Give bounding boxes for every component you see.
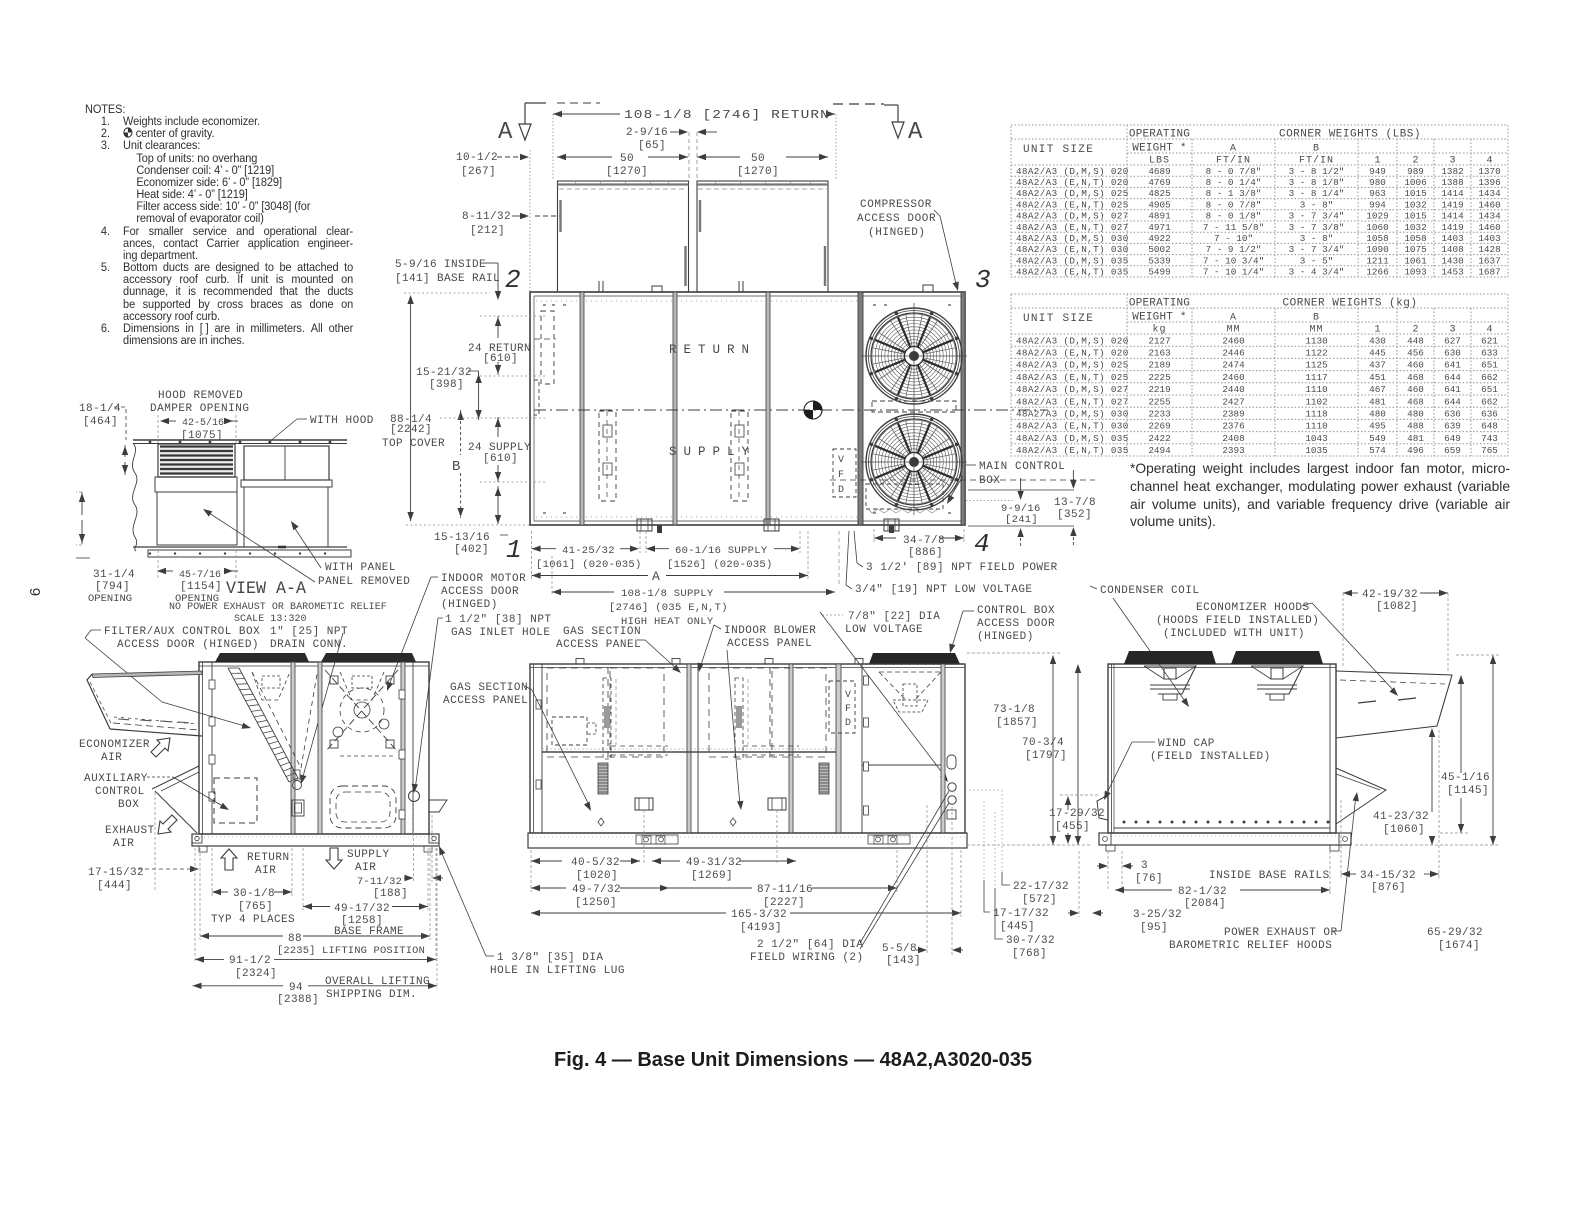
svg-text:5-9/16 INSIDE: 5-9/16 INSIDE [395,259,486,271]
svg-text:1408: 1408 [1441,244,1463,255]
svg-text:448: 448 [1407,335,1424,346]
svg-text:989: 989 [1407,166,1424,177]
svg-text:2219: 2219 [1148,384,1170,395]
svg-text:82-1/32: 82-1/32 [1178,886,1227,898]
svg-text:8 - 0 1/4": 8 - 0 1/4" [1206,177,1262,188]
svg-text:ACCESS PANEL: ACCESS PANEL [556,639,641,651]
svg-text:1453: 1453 [1441,267,1463,278]
svg-text:[572]: [572] [1022,894,1057,906]
svg-text:(HINGED): (HINGED) [868,227,926,239]
svg-text:4971: 4971 [1148,222,1171,233]
svg-text:[2227]: [2227] [763,897,805,909]
svg-text:1 1/2" [38] NPT: 1 1/2" [38] NPT [445,614,552,626]
svg-text:7 - 10 3/4": 7 - 10 3/4" [1203,255,1264,266]
svg-text:456: 456 [1407,348,1424,359]
svg-text:D: D [838,485,844,496]
svg-text:2440: 2440 [1222,384,1244,395]
svg-text:(HINGED): (HINGED) [977,631,1034,643]
svg-text:649: 649 [1444,433,1461,444]
svg-text:18-1/4: 18-1/4 [79,403,121,415]
svg-text:481: 481 [1369,396,1386,407]
svg-text:496: 496 [1407,445,1424,456]
svg-text:48A2/A3 (D,M,S) 020: 48A2/A3 (D,M,S) 020 [1016,335,1129,346]
svg-text:1130: 1130 [1305,335,1327,346]
svg-text:641: 641 [1444,360,1461,371]
svg-text:636: 636 [1444,409,1461,420]
svg-text:648: 648 [1481,421,1498,432]
svg-text:7/8" [22] DIA: 7/8" [22] DIA [848,611,940,623]
svg-text:48A2/A3 (E,N,T) 025: 48A2/A3 (E,N,T) 025 [1016,199,1129,210]
svg-text:48A2/A3 (E,N,T) 027: 48A2/A3 (E,N,T) 027 [1016,222,1129,233]
svg-text:87-11/16: 87-11/16 [757,884,813,896]
svg-text:8 - 0 7/8": 8 - 0 7/8" [1206,199,1262,210]
svg-text:2376: 2376 [1222,421,1244,432]
svg-text:3: 3 [1449,325,1455,336]
svg-text:165-3/32: 165-3/32 [731,909,787,921]
svg-text:SUPPLY: SUPPLY [669,445,756,459]
svg-text:48A2/A3 (E,N,T) 030: 48A2/A3 (E,N,T) 030 [1016,244,1129,255]
svg-text:73-1/8: 73-1/8 [993,704,1035,716]
svg-text:4689: 4689 [1148,166,1170,177]
svg-text:1093: 1093 [1404,267,1426,278]
svg-text:(HOODS FIELD INSTALLED): (HOODS FIELD INSTALLED) [1156,615,1319,627]
svg-text:(FIELD INSTALLED): (FIELD INSTALLED) [1150,751,1271,763]
svg-text:48A2/A3 (D,M,S) 025: 48A2/A3 (D,M,S) 025 [1016,188,1129,199]
svg-text:17-17/32: 17-17/32 [993,908,1049,920]
svg-text:TOP COVER: TOP COVER [382,438,445,450]
svg-text:627: 627 [1444,335,1461,346]
svg-text:1396: 1396 [1478,177,1500,188]
svg-text:[886]: [886] [908,547,943,559]
svg-text:48A2/A3 (D,M,S) 020: 48A2/A3 (D,M,S) 020 [1016,166,1129,177]
svg-text:2460: 2460 [1222,372,1244,383]
svg-text:5339: 5339 [1148,255,1170,266]
svg-text:468: 468 [1407,372,1424,383]
svg-text:2 1/2" [64] DIA: 2 1/2" [64] DIA [757,939,864,951]
svg-text:[1154]: [1154] [180,581,222,593]
svg-text:1061: 1061 [1404,255,1427,266]
svg-text:40-5/32: 40-5/32 [571,857,620,869]
svg-text:48A2/A3 (D,M,S) 030: 48A2/A3 (D,M,S) 030 [1016,233,1129,244]
svg-text:[402]: [402] [454,544,489,556]
svg-text:2233: 2233 [1148,409,1170,420]
svg-text:45-1/16: 45-1/16 [1441,772,1490,784]
svg-text:1403: 1403 [1478,233,1500,244]
svg-text:2163: 2163 [1148,348,1170,359]
svg-text:[1145]: [1145] [1447,785,1489,797]
svg-text:1032: 1032 [1404,199,1426,210]
svg-text:V: V [838,455,844,466]
svg-text:651: 651 [1481,360,1498,371]
svg-text:GAS SECTION: GAS SECTION [563,626,641,638]
svg-text:[464]: [464] [83,416,118,428]
svg-text:AIR: AIR [113,838,134,850]
svg-text:1434: 1434 [1478,188,1501,199]
svg-text:48A2/A3 (D,M,S) 027: 48A2/A3 (D,M,S) 027 [1016,384,1129,395]
svg-text:ECONOMIZER: ECONOMIZER [79,739,150,751]
svg-text:48A2/A3 (D,M,S) 035: 48A2/A3 (D,M,S) 035 [1016,433,1129,444]
svg-text:437: 437 [1369,360,1386,371]
svg-text:1118: 1118 [1305,409,1327,420]
svg-text:659: 659 [1444,445,1461,456]
svg-text:34-15/32: 34-15/32 [1360,870,1416,882]
svg-text:1211: 1211 [1366,255,1389,266]
svg-text:488: 488 [1407,421,1424,432]
svg-text:662: 662 [1481,372,1498,383]
svg-text:(INCLUDED WITH UNIT): (INCLUDED WITH UNIT) [1163,628,1305,640]
svg-text:F: F [838,470,844,481]
svg-text:[1857]: [1857] [996,717,1038,729]
svg-text:42-5/16: 42-5/16 [182,417,224,429]
svg-text:[1061] (020-035): [1061] (020-035) [536,559,642,571]
svg-text:ACCESS DOOR: ACCESS DOOR [857,213,936,225]
svg-text:1015: 1015 [1404,188,1426,199]
svg-text:94: 94 [289,982,303,994]
svg-text:1419: 1419 [1441,222,1463,233]
svg-text:4905: 4905 [1148,199,1170,210]
svg-text:SHIPPING DIM.: SHIPPING DIM. [326,989,417,1001]
svg-text:CORNER WEIGHTS (kg): CORNER WEIGHTS (kg) [1283,298,1418,310]
svg-text:AIR: AIR [101,752,122,764]
svg-text:3 - 7 3/8": 3 - 7 3/8" [1289,222,1345,233]
svg-text:[2324]: [2324] [235,968,277,980]
svg-text:FT/IN: FT/IN [1216,155,1251,167]
svg-text:3 - 7 3/4": 3 - 7 3/4" [1289,211,1345,222]
svg-text:2189: 2189 [1148,360,1170,371]
svg-text:17-15/32: 17-15/32 [88,867,144,879]
svg-text:641: 641 [1444,384,1461,395]
svg-text:31-1/4: 31-1/4 [93,569,135,581]
svg-text:MAIN CONTROL: MAIN CONTROL [979,461,1065,473]
svg-text:[1270]: [1270] [606,166,648,178]
svg-text:GAS SECTION: GAS SECTION [450,682,528,694]
svg-text:ACCESS DOOR: ACCESS DOOR [441,586,519,598]
svg-text:1029: 1029 [1366,211,1388,222]
svg-text:SUPPLY: SUPPLY [347,849,390,861]
svg-text:4: 4 [974,529,990,559]
svg-text:B: B [1313,144,1320,155]
svg-text:1370: 1370 [1478,166,1500,177]
svg-text:[4193]: [4193] [740,922,782,934]
svg-text:D: D [845,718,851,729]
svg-text:30-7/32: 30-7/32 [1006,935,1055,947]
svg-text:HOLE IN LIFTING LUG: HOLE IN LIFTING LUG [490,965,625,977]
svg-text:A: A [1230,313,1237,324]
svg-text:INDOOR MOTOR: INDOOR MOTOR [441,573,526,585]
svg-text:1414: 1414 [1441,211,1464,222]
svg-text:MM: MM [1226,325,1240,336]
svg-text:108-1/8 [2746] RETURN: 108-1/8 [2746] RETURN [624,109,830,122]
svg-text:1388: 1388 [1441,177,1463,188]
svg-text:[241]: [241] [1005,514,1038,526]
svg-text:3: 3 [1141,860,1148,872]
svg-text:50: 50 [620,153,634,165]
svg-text:4891: 4891 [1148,211,1171,222]
svg-text:OVERALL LIFTING: OVERALL LIFTING [325,976,430,988]
svg-text:WITH HOOD: WITH HOOD [310,415,374,427]
svg-text:1687: 1687 [1478,267,1500,278]
svg-text:6: 6 [27,588,44,596]
svg-text:7 - 11 5/8": 7 - 11 5/8" [1203,222,1264,233]
svg-text:460: 460 [1407,384,1424,395]
svg-text:ECONOMIZER HOODS: ECONOMIZER HOODS [1196,602,1310,614]
svg-text:Fig. 4 — Base Unit Dimensions: Fig. 4 — Base Unit Dimensions — 48A2,A30… [554,1049,1032,1071]
svg-text:963: 963 [1369,188,1386,199]
svg-text:48A2/A3 (E,N,T) 035: 48A2/A3 (E,N,T) 035 [1016,267,1129,278]
svg-text:A: A [1230,144,1237,155]
svg-text:3-25/32: 3-25/32 [1133,909,1182,921]
svg-text:[1270]: [1270] [737,166,779,178]
svg-text:FT/IN: FT/IN [1299,155,1334,167]
svg-text:[1674]: [1674] [1438,940,1480,952]
svg-text:WEIGHT *: WEIGHT * [1132,312,1186,324]
svg-text:621: 621 [1481,335,1498,346]
svg-text:WITH PANEL: WITH PANEL [325,562,396,574]
svg-text:1: 1 [1374,325,1380,336]
svg-text:48A2/A3 (E,N,T) 020: 48A2/A3 (E,N,T) 020 [1016,348,1129,359]
svg-text:41-25/32: 41-25/32 [562,545,615,557]
svg-text:V: V [845,690,851,701]
svg-text:17-29/32: 17-29/32 [1049,808,1105,820]
svg-text:1414: 1414 [1441,188,1464,199]
svg-text:49-31/32: 49-31/32 [686,857,742,869]
svg-text:A: A [498,119,513,146]
svg-text:1266: 1266 [1366,267,1388,278]
svg-text:41-23/32: 41-23/32 [1373,811,1429,823]
svg-text:765: 765 [1481,445,1498,456]
svg-text:BOX: BOX [979,475,1001,487]
svg-text:SCALE 13:320: SCALE 13:320 [234,614,307,625]
svg-text:[267]: [267] [461,166,496,178]
svg-text:13-7/8: 13-7/8 [1054,497,1096,509]
svg-text:1043: 1043 [1305,433,1327,444]
svg-text:POWER EXHAUST OR: POWER EXHAUST OR [1224,927,1338,939]
svg-text:49-7/32: 49-7/32 [572,884,621,896]
svg-text:ACCESS PANEL: ACCESS PANEL [443,695,528,707]
svg-text:2127: 2127 [1148,335,1170,346]
svg-text:1058: 1058 [1366,233,1388,244]
svg-text:B: B [452,459,460,475]
svg-text:1 3/8" [35] DIA: 1 3/8" [35] DIA [497,952,604,964]
svg-text:[188]: [188] [373,888,408,900]
svg-text:48A2/A3 (E,N,T) 035: 48A2/A3 (E,N,T) 035 [1016,445,1129,456]
svg-text:42-19/32: 42-19/32 [1362,589,1418,601]
svg-text:460: 460 [1407,360,1424,371]
svg-text:UNIT SIZE: UNIT SIZE [1023,313,1094,325]
svg-text:B: B [1313,313,1320,324]
svg-text:2: 2 [505,265,521,295]
svg-text:4769: 4769 [1148,177,1170,188]
svg-text:5-5/8: 5-5/8 [882,943,917,955]
svg-text:3 - 4 3/4": 3 - 4 3/4" [1289,267,1345,278]
svg-text:[1082]: [1082] [1376,601,1418,613]
svg-text:994: 994 [1369,199,1386,210]
svg-text:8 - 0 7/8": 8 - 0 7/8" [1206,166,1262,177]
svg-text:8-11/32: 8-11/32 [462,211,511,223]
svg-text:644: 644 [1444,396,1461,407]
svg-text:HOOD REMOVED: HOOD REMOVED [158,390,243,402]
svg-text:2427: 2427 [1222,396,1244,407]
svg-text:10-1/2: 10-1/2 [456,152,498,164]
svg-text:3 - 7 3/4": 3 - 7 3/4" [1289,244,1345,255]
svg-text:[141] BASE RAIL: [141] BASE RAIL [395,273,500,285]
svg-text:2446: 2446 [1222,348,1244,359]
svg-text:30-1/8: 30-1/8 [233,888,275,900]
svg-text:2460: 2460 [1222,335,1244,346]
svg-text:1403: 1403 [1441,233,1463,244]
svg-text:[2388]: [2388] [277,994,319,1006]
svg-text:PANEL REMOVED: PANEL REMOVED [318,576,410,588]
svg-text:1382: 1382 [1441,166,1463,177]
svg-text:3 - 8": 3 - 8" [1300,233,1333,244]
svg-text:1419: 1419 [1441,199,1463,210]
svg-text:1122: 1122 [1305,348,1327,359]
svg-text:949: 949 [1369,166,1386,177]
svg-text:1075: 1075 [1404,244,1426,255]
svg-text:[876]: [876] [1371,882,1406,894]
svg-text:481: 481 [1407,433,1424,444]
svg-text:1035: 1035 [1305,445,1327,456]
svg-text:1006: 1006 [1404,177,1426,188]
svg-text:AUXILIARY: AUXILIARY [84,773,148,785]
svg-text:639: 639 [1444,421,1461,432]
svg-text:630: 630 [1444,348,1461,359]
svg-text:5002: 5002 [1148,244,1170,255]
svg-text:3 - 8 1/4": 3 - 8 1/4" [1289,188,1345,199]
svg-text:[398]: [398] [429,379,464,391]
svg-text:VIEW A-A: VIEW A-A [226,579,306,599]
svg-text:[445]: [445] [1000,921,1035,933]
svg-text:108-1/8 SUPPLY: 108-1/8 SUPPLY [621,588,714,600]
svg-text:FILTER/AUX CONTROL BOX: FILTER/AUX CONTROL BOX [104,626,260,638]
svg-text:662: 662 [1481,396,1498,407]
svg-text:INDOOR BLOWER: INDOOR BLOWER [724,625,816,637]
svg-text:1460: 1460 [1478,222,1500,233]
svg-text:[1250]: [1250] [575,897,617,909]
svg-text:467: 467 [1369,384,1386,395]
svg-text:48A2/A3 (E,N,T) 027: 48A2/A3 (E,N,T) 027 [1016,396,1129,407]
svg-text:UNIT SIZE: UNIT SIZE [1023,144,1094,156]
svg-text:2-9/16: 2-9/16 [626,127,668,139]
svg-text:633: 633 [1481,348,1498,359]
svg-text:OPERATING: OPERATING [1129,129,1190,141]
svg-text:1110: 1110 [1305,384,1327,395]
svg-text:5499: 5499 [1148,267,1170,278]
svg-text:WIND CAP: WIND CAP [1158,738,1215,750]
svg-text:LOW VOLTAGE: LOW VOLTAGE [845,624,923,636]
svg-text:1428: 1428 [1478,244,1500,255]
svg-text:1090: 1090 [1366,244,1388,255]
svg-text:[1060]: [1060] [1383,824,1425,836]
svg-text:A: A [908,119,923,146]
svg-text:[2235] LIFTING POSITION: [2235] LIFTING POSITION [277,945,425,957]
svg-text:3 - 8 1/2": 3 - 8 1/2" [1289,166,1345,177]
svg-text:48A2/A3 (D,M,S) 030: 48A2/A3 (D,M,S) 030 [1016,409,1129,420]
svg-text:kg: kg [1152,324,1166,336]
svg-text:1117: 1117 [1305,372,1327,383]
svg-text:TYP 4 PLACES: TYP 4 PLACES [211,914,295,926]
svg-text:480: 480 [1407,409,1424,420]
svg-text:1637: 1637 [1478,255,1500,266]
svg-text:[76]: [76] [1135,873,1163,885]
svg-text:2494: 2494 [1148,445,1171,456]
svg-text:70-3/4: 70-3/4 [1022,737,1064,749]
svg-text:GAS INLET HOLE: GAS INLET HOLE [451,627,550,639]
svg-text:8 - 0 1/8": 8 - 0 1/8" [1206,211,1262,222]
svg-text:644: 644 [1444,372,1461,383]
svg-text:1125: 1125 [1305,360,1327,371]
svg-text:574: 574 [1369,445,1386,456]
svg-text:1434: 1434 [1478,211,1501,222]
svg-text:2225: 2225 [1148,372,1170,383]
svg-text:468: 468 [1407,396,1424,407]
svg-text:1460: 1460 [1478,199,1500,210]
svg-text:22-17/32: 22-17/32 [1013,881,1069,893]
svg-text:AIR: AIR [255,865,276,877]
svg-text:15-13/16: 15-13/16 [434,532,490,544]
svg-text:[1020]: [1020] [576,870,618,882]
svg-text:3 - 8 1/8": 3 - 8 1/8" [1289,177,1345,188]
svg-text:1015: 1015 [1404,211,1426,222]
svg-text:ACCESS DOOR: ACCESS DOOR [977,618,1055,630]
svg-text:1032: 1032 [1404,222,1426,233]
svg-text:4: 4 [1486,325,1492,336]
svg-text:2408: 2408 [1222,433,1244,444]
svg-text:2389: 2389 [1222,409,1244,420]
svg-text:91-1/2: 91-1/2 [229,955,271,967]
svg-text:7-11/32: 7-11/32 [357,876,402,888]
svg-text:CORNER WEIGHTS (LBS): CORNER WEIGHTS (LBS) [1279,129,1421,141]
svg-text:[610]: [610] [483,353,518,365]
svg-text:48A2/A3 (D,M,S) 027: 48A2/A3 (D,M,S) 027 [1016,211,1129,222]
svg-text:8 - 1 3/8": 8 - 1 3/8" [1206,188,1262,199]
svg-text:[455]: [455] [1055,821,1090,833]
svg-text:2393: 2393 [1222,445,1244,456]
svg-text:[610]: [610] [483,453,518,465]
svg-text:48A2/A3 (E,N,T) 025: 48A2/A3 (E,N,T) 025 [1016,372,1129,383]
svg-text:743: 743 [1481,433,1498,444]
svg-text:451: 451 [1369,372,1386,383]
svg-text:[765]: [765] [238,901,273,913]
svg-text:CONTROL: CONTROL [95,786,145,798]
svg-text:1: 1 [506,535,522,565]
svg-text:7 - 9 1/2": 7 - 9 1/2" [1206,244,1262,255]
svg-text:INSIDE BASE RAILS: INSIDE BASE RAILS [1209,870,1330,882]
svg-text:636: 636 [1481,409,1498,420]
svg-text:88: 88 [288,933,302,945]
svg-text:CONDENSER COIL: CONDENSER COIL [1100,585,1199,597]
svg-text:[95]: [95] [1140,922,1168,934]
svg-text:[2746] (035 E,N,T): [2746] (035 E,N,T) [609,602,728,614]
svg-text:OPERATING: OPERATING [1129,298,1190,310]
svg-text:430: 430 [1369,335,1386,346]
svg-text:445: 445 [1369,348,1386,359]
svg-text:3 - 5": 3 - 5" [1300,255,1333,266]
svg-text:[794]: [794] [95,581,130,593]
svg-text:NO POWER EXHAUST OR BAROMETIC: NO POWER EXHAUST OR BAROMETIC RELIEF [169,602,387,613]
svg-text:651: 651 [1481,384,1498,395]
svg-text:1102: 1102 [1305,396,1327,407]
svg-text:45-7/16: 45-7/16 [179,569,221,581]
svg-text:RETURN: RETURN [247,852,290,864]
svg-text:4825: 4825 [1148,188,1170,199]
svg-text:1" [25] NPT: 1" [25] NPT [270,626,348,638]
svg-text:34-7/8: 34-7/8 [903,535,945,547]
svg-text:ACCESS PANEL: ACCESS PANEL [727,638,812,650]
svg-text:FIELD WIRING (2): FIELD WIRING (2) [750,952,864,964]
svg-text:48A2/A3 (D,M,S) 035: 48A2/A3 (D,M,S) 035 [1016,255,1129,266]
svg-text:48A2/A3 (E,N,T) 030: 48A2/A3 (E,N,T) 030 [1016,421,1129,432]
